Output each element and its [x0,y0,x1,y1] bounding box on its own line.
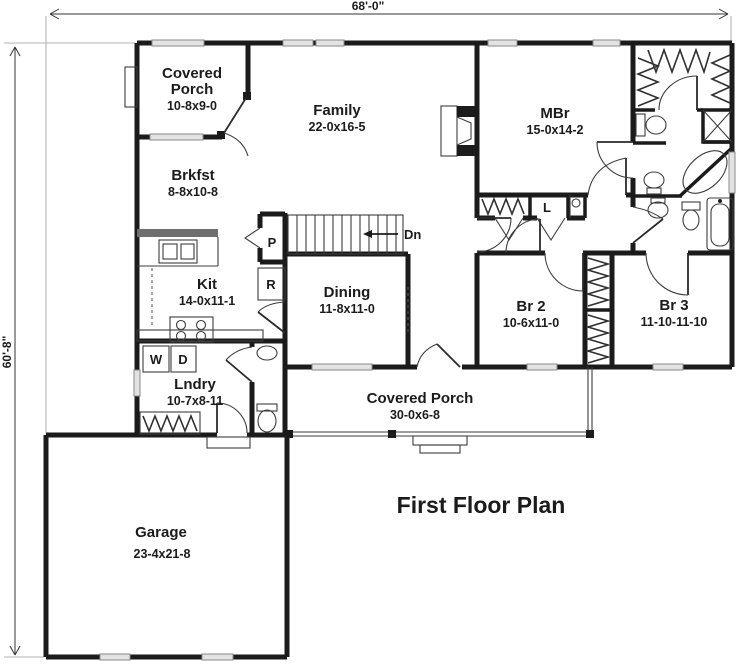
burner-icon [177,321,186,330]
door-porch-arc [224,133,248,156]
kitchen-halfwall [137,229,218,237]
halfbath-toilet-bowl [258,410,276,432]
window-garage-1 [100,654,130,660]
door-hallbath-leaf [633,219,663,243]
stair-arrow-icon [363,230,372,238]
porch-steps-inner [420,445,460,453]
room-size-brkfst: 8-8x10-8 [168,185,218,199]
door-hall-arc-2 [506,219,540,253]
window-family-2 [316,40,344,46]
kitchen-sink-basin-1 [163,244,177,259]
closet-symbols [140,50,730,434]
door-kitchen-dining-arc [258,302,285,312]
dimension-lines [4,9,731,657]
window-mbr [488,40,517,46]
room-label-mbr: MBr [540,105,569,122]
porch-post [285,430,293,438]
wall-garage [46,435,287,657]
room-size-family: 22-0x16-5 [309,120,366,134]
br2-closet-rod-icon [588,258,608,306]
master-toilet-tank [636,114,645,136]
porch-post [586,430,594,438]
window-master-bath [729,152,735,193]
room-label-br2: Br 2 [516,298,545,315]
dimension-label-height: 60'-8" [0,336,14,369]
window-dining [312,364,372,370]
marker-stairs-down: Dn [404,227,421,242]
halfbath-sink [257,346,277,360]
br3-closet-rod-icon [588,315,608,363]
windows [100,40,735,660]
door-masterbath-arc [597,142,633,178]
room-label-br3: Br 3 [659,297,688,314]
shower-x-icon [703,110,732,142]
room-label-brkfst: Brkfst [171,167,214,184]
wic-rod-left-icon [638,58,658,106]
room-label-dining: Dining [324,284,371,301]
burner-icon [197,321,206,330]
marker-pantry: P [268,235,277,250]
room-label-garage: Garage [135,524,187,541]
window-br2 [527,364,557,370]
hallbath-toilet-bowl [683,210,699,230]
tub-faucet-icon [718,199,722,203]
window-br3 [653,364,683,370]
marker-refrigerator: R [266,277,276,292]
door-pantry-wedge [245,228,260,248]
labels: Covered Porch 10-8x9-0 Family 22-0x16-5 … [0,0,707,561]
room-size-porch-rear: 10-8x9-0 [167,99,217,113]
room-label-porch-rear-2: Porch [171,81,214,98]
room-label-family: Family [313,102,361,119]
porch-door-jamb-top [243,92,251,100]
water-heater-icon [572,199,580,207]
room-size-kit: 14-0x11-1 [179,294,235,308]
window-garage-2 [202,654,233,660]
wic-rod-top-icon [648,50,710,72]
room-label-lndry: Lndry [174,376,216,393]
master-sink-pedestal [647,188,661,194]
room-label-porch-front: Covered Porch [367,390,474,407]
floor-plan-canvas: Covered Porch 10-8x9-0 Family 22-0x16-5 … [0,0,739,664]
door-br3-arc [646,253,688,295]
staircase [288,215,403,254]
room-size-br3: 11-10-11-10 [641,315,708,329]
door-laundry-bath-leaf [226,360,252,382]
door-mbr-arc [588,158,626,195]
door-porch-front-arc [417,344,437,367]
window-laundry [134,370,140,396]
mbr-closet-rod-icon [482,199,524,214]
room-label-porch-rear-1: Covered [162,65,222,82]
marker-washer: W [150,352,163,367]
room-size-garage: 23-4x21-8 [134,547,191,561]
master-toilet-bowl [646,116,666,134]
laundry-closet-rod-icon [143,416,197,431]
door-wic-arc [659,76,697,110]
walls [46,43,733,657]
room-size-br2: 10-6x11-0 [503,316,559,330]
fireplace-side-top [457,106,477,117]
window-family-1 [283,40,313,46]
room-label-kit: Kit [197,276,217,293]
page-title: First Floor Plan [397,492,566,518]
porch-post [388,430,396,438]
floor-plan-page: Covered Porch 10-8x9-0 Family 22-0x16-5 … [0,0,739,664]
room-size-mbr: 15-0x14-2 [527,123,584,137]
porch-steps-outer [413,436,467,445]
room-size-dining: 11-8x11-0 [319,302,375,316]
marker-dryer: D [178,352,187,367]
master-sink [644,172,664,188]
door-linen-closet-wedge [537,218,565,240]
door-br2-arc [545,253,583,291]
wic-rod-right-icon [712,55,730,103]
window-porch-bottom-wall [150,134,203,140]
door-hall-arc-1 [477,218,511,252]
fireplace-firebox [457,117,471,145]
marker-linen: L [543,200,551,215]
hallbath-tub-inner [711,204,729,246]
garage-entry-step [207,437,250,448]
kitchen-sink-basin-2 [181,244,194,259]
door-porch-leaf [224,98,246,133]
dimension-label-width: 68'-0" [352,0,385,13]
fireplace-hearth [441,106,457,156]
fireplace-side-bottom [457,145,477,156]
hallbath-toilet-tank [682,202,700,210]
door-porch-front-leaf [437,344,460,367]
window-porch-top [152,40,204,46]
room-size-lndry: 10-7x8-11 [167,394,223,408]
door-laundry-bath-arc [226,347,252,360]
room-size-porch-front: 30-0x6-8 [390,408,440,422]
window-wic [593,40,620,46]
